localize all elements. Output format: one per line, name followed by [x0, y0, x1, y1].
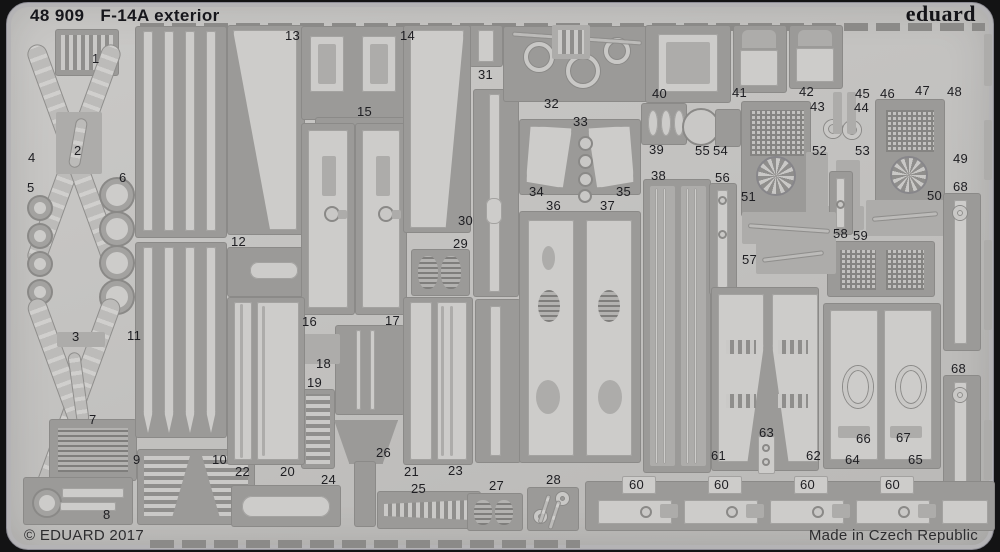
- part-number-label: 8: [103, 508, 111, 521]
- part-number-label: 44: [854, 101, 869, 114]
- part-number-label: 2: [74, 144, 82, 157]
- part-number-label: 50: [927, 189, 942, 202]
- part-number-label: 5: [27, 181, 35, 194]
- part-number-label: 48: [947, 85, 962, 98]
- part-number-label: 9: [133, 453, 141, 466]
- part-number-label: 55: [695, 144, 710, 157]
- part-number-label: 60: [629, 478, 644, 491]
- part-number-label: 16: [302, 315, 317, 328]
- part-number-label: 19: [307, 376, 322, 389]
- part-number-label: 12: [231, 235, 246, 248]
- part-number-label: 10: [212, 453, 227, 466]
- part-number-label: 26: [376, 446, 391, 459]
- part-number-label: 61: [711, 449, 726, 462]
- part-number-label: 18: [316, 357, 331, 370]
- part-number-label: 43: [810, 100, 825, 113]
- part-number-label: 3: [72, 330, 80, 343]
- part-number-label: 46: [880, 87, 895, 100]
- part-number-label: 60: [800, 478, 815, 491]
- eduard-logo: eduard: [906, 1, 976, 27]
- product-title: F-14A exterior: [100, 6, 219, 25]
- fret-header: 48 909F-14A exterior: [30, 6, 220, 26]
- part-number-label: 34: [529, 185, 544, 198]
- part-number-label: 53: [855, 144, 870, 157]
- catalog-number: 48 909: [30, 6, 84, 25]
- part-number-label: 27: [489, 479, 504, 492]
- part-number-label: 30: [458, 214, 473, 227]
- part-number-label: 31: [478, 68, 493, 81]
- part-number-label: 14: [400, 29, 415, 42]
- part-number-label: 65: [908, 453, 923, 466]
- part-number-label: 32: [544, 97, 559, 110]
- part-number-label: 28: [546, 473, 561, 486]
- part-number-label: 66: [856, 432, 871, 445]
- part-number-label: 15: [357, 105, 372, 118]
- part-number-label: 29: [453, 237, 468, 250]
- photo-etch-fret-photo: 1245637811910131222201415302916171819262…: [0, 0, 1000, 552]
- part-number-label: 37: [600, 199, 615, 212]
- part-number-label: 47: [915, 84, 930, 97]
- part-number-label: 13: [285, 29, 300, 42]
- part-number-label: 41: [732, 86, 747, 99]
- part-number-label: 35: [616, 185, 631, 198]
- part-number-label: 38: [651, 169, 666, 182]
- part-number-label: 62: [806, 449, 821, 462]
- part-number-label: 54: [713, 144, 728, 157]
- part-number-label: 57: [742, 253, 757, 266]
- part-number-label: 20: [280, 465, 295, 478]
- part-number-label: 68: [953, 180, 968, 193]
- part-number-label: 45: [855, 87, 870, 100]
- part-number-label: 64: [845, 453, 860, 466]
- part-number-label: 59: [853, 229, 868, 242]
- part-number-label: 23: [448, 464, 463, 477]
- copyright-text: © EDUARD 2017: [24, 527, 144, 544]
- part-number-label: 58: [833, 227, 848, 240]
- part-number-label: 21: [404, 465, 419, 478]
- part-labels-layer: 1245637811910131222201415302916171819262…: [0, 0, 1000, 552]
- part-number-label: 33: [573, 115, 588, 128]
- part-number-label: 67: [896, 431, 911, 444]
- part-number-label: 63: [759, 426, 774, 439]
- part-number-label: 51: [741, 190, 756, 203]
- part-number-label: 60: [885, 478, 900, 491]
- made-in-text: Made in Czech Republic: [809, 527, 978, 544]
- part-number-label: 49: [953, 152, 968, 165]
- part-number-label: 17: [385, 314, 400, 327]
- part-number-label: 56: [715, 171, 730, 184]
- part-number-label: 39: [649, 143, 664, 156]
- part-number-label: 1: [92, 52, 100, 65]
- part-number-label: 6: [119, 171, 127, 184]
- part-number-label: 68: [951, 362, 966, 375]
- part-number-label: 42: [799, 85, 814, 98]
- part-number-label: 11: [127, 329, 141, 342]
- part-number-label: 25: [411, 482, 426, 495]
- part-number-label: 7: [89, 413, 97, 426]
- part-number-label: 36: [546, 199, 561, 212]
- part-number-label: 60: [714, 478, 729, 491]
- part-number-label: 24: [321, 473, 336, 486]
- part-number-label: 22: [235, 465, 250, 478]
- part-number-label: 52: [812, 144, 827, 157]
- part-number-label: 4: [28, 151, 36, 164]
- part-number-label: 40: [652, 87, 667, 100]
